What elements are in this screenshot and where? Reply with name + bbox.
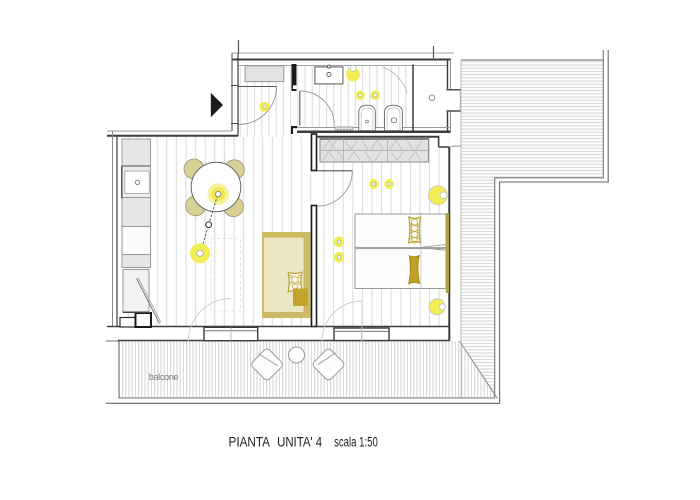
svg-text:PIANTA: PIANTA (229, 434, 271, 449)
svg-text:balcone: balcone (149, 372, 179, 382)
svg-text:scala 1:50: scala 1:50 (334, 434, 378, 449)
svg-text:UNITA' 4: UNITA' 4 (277, 434, 322, 449)
